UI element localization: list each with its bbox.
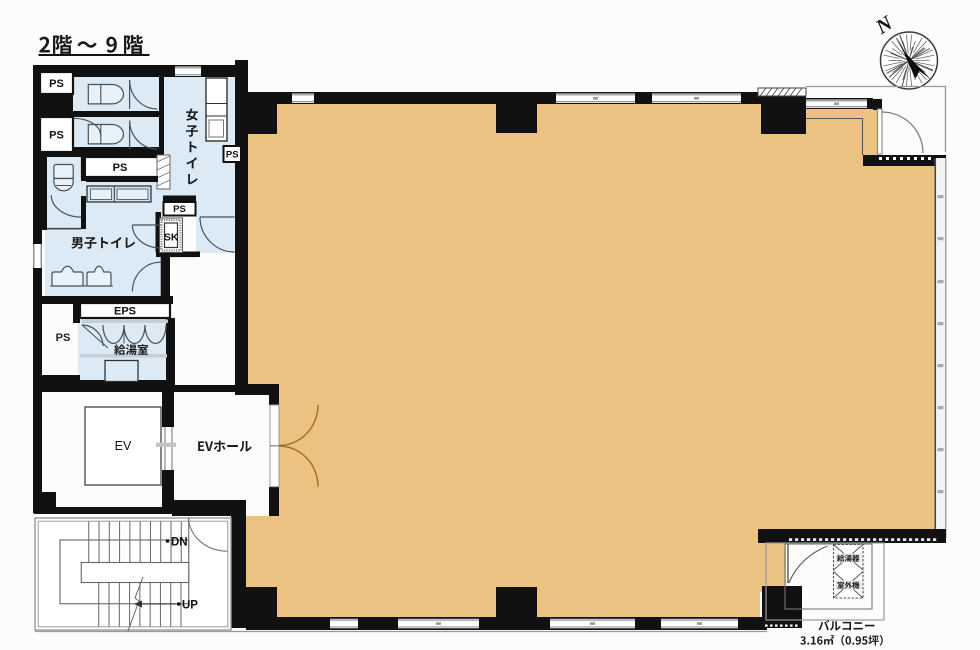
svg-text:SK: SK — [164, 232, 179, 244]
svg-text:PS: PS — [49, 78, 64, 90]
svg-text:PS: PS — [49, 129, 64, 141]
svg-text:PS: PS — [226, 149, 239, 160]
svg-text:EV: EV — [115, 439, 132, 453]
svg-text:DN: DN — [171, 537, 188, 549]
svg-text:UP: UP — [182, 600, 198, 612]
svg-text:PS: PS — [56, 332, 71, 344]
svg-text:EPS: EPS — [114, 305, 136, 317]
svg-text:PS: PS — [173, 204, 186, 215]
svg-text:PS: PS — [113, 162, 128, 174]
